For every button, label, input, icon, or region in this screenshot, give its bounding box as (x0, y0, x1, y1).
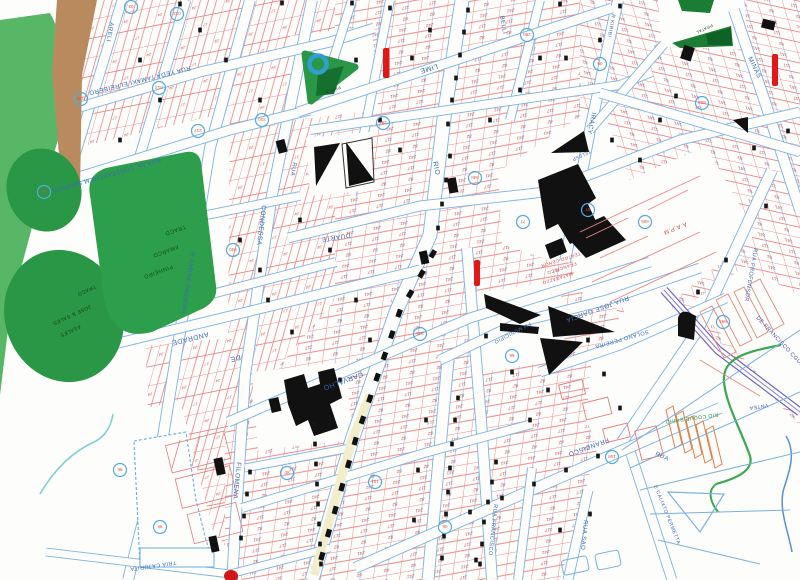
svg-text:66: 66 (509, 353, 515, 358)
svg-text:217: 217 (194, 128, 202, 133)
svg-text:685: 685 (641, 219, 649, 224)
svg-text:280: 280 (523, 32, 531, 37)
svg-text:46: 46 (41, 189, 47, 194)
svg-text:95: 95 (157, 524, 163, 529)
svg-text:101: 101 (371, 479, 379, 484)
svg-text:294: 294 (379, 120, 387, 125)
svg-text:602: 602 (698, 100, 706, 105)
svg-text:06: 06 (442, 524, 448, 529)
svg-text:03: 03 (128, 4, 134, 9)
svg-text:613: 613 (155, 85, 163, 90)
svg-text:108: 108 (608, 454, 616, 459)
svg-text:245: 245 (416, 331, 424, 336)
svg-text:77: 77 (520, 219, 526, 224)
svg-text:310: 310 (258, 117, 266, 122)
svg-text:019: 019 (77, 96, 85, 101)
svg-text:09: 09 (597, 61, 603, 66)
svg-text:694: 694 (719, 319, 727, 324)
svg-text:67: 67 (585, 207, 591, 212)
svg-text:96: 96 (117, 467, 123, 472)
svg-text:80: 80 (284, 470, 290, 475)
svg-text:948: 948 (471, 175, 479, 180)
svg-text:013: 013 (173, 11, 181, 16)
svg-text:940: 940 (229, 247, 237, 252)
